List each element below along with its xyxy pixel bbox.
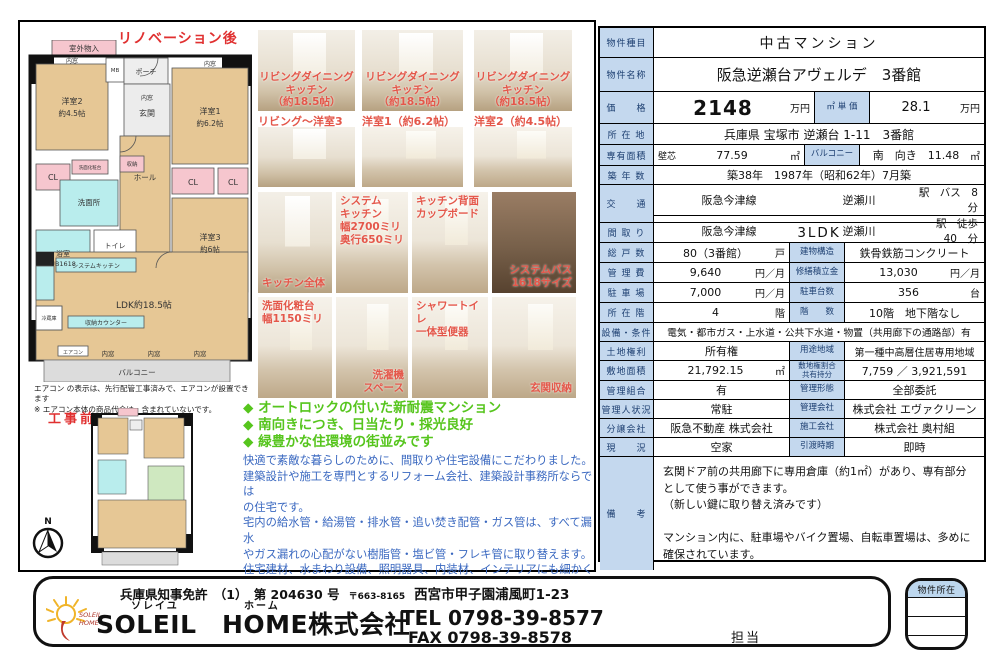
mgmt-fee-value: 9,640	[658, 266, 753, 279]
photo-caption: システム キッチン 幅2700ミリ 奥行650ミリ	[340, 195, 404, 248]
photo-ldk-1: リビングダイニングキッチン （約18.5帖）	[258, 30, 355, 111]
plan-uchimado-label: 内窓	[148, 349, 162, 358]
repair-fund-value: 13,030	[849, 266, 948, 279]
table-row: 管理組合 有 管理形態 全部委託	[600, 381, 984, 400]
photo-caption: 玄関収納	[530, 382, 572, 395]
flyer-page: リノベーション後 室外物入	[0, 0, 1000, 651]
occupancy-value: 空家	[658, 439, 785, 455]
row-sublabel: 敷地権割合 共有持分	[789, 361, 845, 380]
land-rights-value: 所有権	[658, 343, 785, 359]
table-row: 間 取 り 3LDK	[600, 223, 984, 243]
phone-number: TEL 0798-39-8577	[401, 606, 604, 630]
floor-value: 4	[658, 306, 773, 319]
photo-caption: 洗濯機 スペース	[363, 369, 404, 395]
plan-cl-label: CL	[48, 173, 59, 182]
row-sublabel: 管理会社	[789, 400, 845, 418]
row-label: 総 戸 数	[600, 243, 654, 262]
utilities-value: 電気・都市ガス・上水道・公共下水道・物置（共用廊下の通路部）有	[654, 323, 984, 341]
floorplan-after: 室外物入 内窓 内窓 MB	[24, 40, 252, 382]
plan-fridge-label: 冷蔵庫	[41, 315, 56, 322]
feature-item: ◆ オートロックの付いた新耐震マンション	[243, 400, 595, 417]
zoning-value: 第一種中高層住居専用地域	[849, 344, 980, 359]
mgmt-company-value: 株式会社 エヴァクリーン	[849, 401, 980, 417]
plan-room3-size: 約6帖	[200, 244, 220, 254]
parking-count-value: 356	[849, 286, 968, 299]
plan-uchimado-label: 内窓	[141, 94, 153, 102]
row-label: 分譲会社	[600, 419, 654, 437]
photo-caption: キッチン全体	[262, 275, 325, 290]
plan-uchimado-label: 内窓	[204, 60, 216, 68]
photo-system-kitchen: システム キッチン 幅2700ミリ 奥行650ミリ	[336, 192, 408, 293]
footer-bar: 兵庫県知事免許 （1） 第 204630 号 〒663-8165 西宮市甲子園浦…	[33, 576, 891, 647]
feature-item: ◆ 南向きにつき、日当たり・採光良好	[243, 417, 595, 434]
row-label: 管理組合	[600, 381, 654, 399]
table-row: 所 在 階 4階 階 数 10階 地下階なし	[600, 303, 984, 323]
company-name: SOLEIL HOME株式会社	[96, 605, 410, 641]
row-label: 駐 車 場	[600, 283, 654, 302]
row-sublabel: ㎡ 単 価	[814, 92, 870, 123]
row-label: 専有面積	[600, 145, 654, 165]
row-label: 所 在 階	[600, 303, 654, 322]
plan-uchimado-label: 内窓	[66, 57, 78, 65]
row-label: 築 年 数	[600, 166, 654, 184]
fax-number: FAX 0798-39-8578	[408, 628, 572, 647]
plan-vanity-label: 洗面化粧台	[79, 164, 102, 171]
property-location-box: 物件所在	[905, 578, 968, 650]
table-row: 築 年 数 築38年 1987年（昭和62年）7月築	[600, 166, 984, 185]
plan-cl-label: CL	[228, 178, 239, 187]
row-sublabel: 建物構造	[789, 243, 845, 262]
staff-label: 担当	[731, 627, 761, 646]
feature-list: ◆ オートロックの付いた新耐震マンション ◆ 南向きにつき、日当たり・採光良好 …	[243, 400, 595, 451]
photo-shower-toilet: シャワートイレ 一体型便器	[412, 297, 488, 398]
plan-bath-label: 浴室	[56, 249, 70, 258]
postal-code: 〒663-8165	[349, 589, 406, 602]
plan-kitchen-label: システムキッチン	[72, 263, 120, 270]
access-line: 阪急今津線	[654, 192, 804, 208]
access-station: 逆瀬川	[804, 192, 914, 208]
photo-laundry-space: 洗濯機 スペース	[336, 297, 408, 398]
unit-price-value: 28.1	[874, 100, 958, 115]
property-location-label: 物件所在	[908, 581, 965, 598]
structure-value: 鉄骨鉄筋コンクリート	[849, 245, 980, 261]
table-row: 物件種目 中古マンション	[600, 28, 984, 58]
photo-room1	[362, 127, 463, 187]
plan-room2-label: 洋室2	[61, 96, 82, 106]
photo-room2	[474, 127, 572, 187]
table-row: 物件名称 阪急逆瀬台アヴェルデ 3番館	[600, 58, 984, 92]
price-value: 2148	[658, 96, 788, 120]
row-label: 管理人状況	[600, 400, 654, 418]
row-label: 現 況	[600, 438, 654, 456]
property-name-value: 阪急逆瀬台アヴェルデ 3番館	[654, 58, 984, 91]
plan-aircon-label: エアコン	[63, 350, 83, 356]
table-row: 土地権利 所有権 用途地域 第一種中高層住居専用地域	[600, 342, 984, 361]
handover-value: 即時	[849, 439, 980, 455]
description-text: 快適で素敵な暮らしのために、間取りや住宅設備にこだわりました。 建築設計や施工を…	[243, 453, 597, 593]
photo-entrance-storage: 玄関収納	[492, 297, 576, 398]
photo-caption: 洗面化粧台 幅1150ミリ	[262, 300, 323, 326]
plan-room1-size: 約6.2帖	[197, 118, 224, 128]
photo-caption: リビングダイニングキッチン （約18.5帖）	[258, 71, 355, 109]
plan-uchimado-label: 内窓	[194, 349, 208, 358]
plan-ldk-label: LDK約18.5帖	[116, 299, 172, 311]
table-row-remarks: 備 考 玄関ドア前の共用廊下に専用倉庫（約1㎡）があり、専有部分 として使う事が…	[600, 457, 984, 570]
row-sublabel: 駐車台数	[789, 283, 845, 302]
photo-kitchen-whole: キッチン全体	[258, 192, 332, 293]
photo-caption: リビングダイニングキッチン （約18.5帖）	[362, 71, 463, 109]
row-label: 物件種目	[600, 28, 654, 57]
unit-price-unit: 万円	[958, 100, 980, 115]
location-value: 兵庫県 宝塚市 逆瀬台 1-11 3番館	[654, 124, 984, 144]
row-label: 設備・条件	[600, 323, 654, 341]
table-row: 管 理 費 9,640円／月 修繕積立金 13,030円／月	[600, 263, 984, 283]
access-detail: 駅 バス 8 分	[914, 185, 984, 215]
table-row: 現 況 空家 引渡時期 即時	[600, 438, 984, 457]
plan-counter-label: 収納カウンター	[85, 319, 127, 327]
row-label: 交 通	[600, 185, 654, 222]
floorplan-before	[88, 408, 198, 568]
area-value: 77.59	[676, 149, 788, 162]
parking-value: 7,000	[658, 286, 753, 299]
soleil-home-logo-icon: SOLEIL HOME	[46, 595, 100, 647]
row-label: 間 取 り	[600, 223, 654, 242]
property-type-value: 中古マンション	[654, 28, 984, 57]
row-sublabel: 用途地域	[789, 342, 845, 360]
company-address: 西宮市甲子園浦風町1-23	[414, 583, 569, 603]
location-box-row	[908, 617, 965, 636]
photo-living-room3	[258, 127, 355, 187]
row-label: 物件名称	[600, 58, 654, 91]
table-row: 駐 車 場 7,000円／月 駐車台数 356台	[600, 283, 984, 303]
balcony-unit: ㎡	[968, 148, 980, 163]
photo-caption: システムバス 1618サイズ	[509, 264, 572, 290]
photo-ldk-2: リビングダイニングキッチン （約18.5帖）	[362, 30, 463, 111]
developer-value: 阪急不動産 株式会社	[658, 420, 785, 436]
row-sublabel: 引渡時期	[789, 438, 845, 456]
table-row: 専有面積 壁芯77.59㎡ バルコニー 南 向き 11.48㎡	[600, 145, 984, 166]
units-value: 80（3番館）	[658, 245, 773, 261]
row-sublabel: 修繕積立金	[789, 263, 845, 282]
table-row-access: 交 通 阪急今津線逆瀬川駅 バス 8 分 阪急今津線逆瀬川駅 徒歩 40 分	[600, 185, 984, 223]
plan-storage-label: 収納	[126, 160, 138, 168]
table-row: 総 戸 数 80（3番館）戸 建物構造 鉄骨鉄筋コンクリート	[600, 243, 984, 263]
table-row: 価 格 2148万円 ㎡ 単 価 28.1万円	[600, 92, 984, 124]
plan-hall-label: ホール	[134, 173, 157, 182]
photo-caption: キッチン背面 カップボード	[416, 195, 479, 221]
row-sublabel: 管理形態	[789, 381, 845, 399]
photo-caption: シャワートイレ 一体型便器	[416, 300, 488, 339]
row-sublabel: 階 数	[789, 303, 845, 322]
row-sublabel: 施工会社	[789, 419, 845, 437]
price-unit: 万円	[788, 100, 810, 115]
plan-balcony-label: バルコニー	[118, 368, 155, 377]
layout-value: 3LDK	[654, 223, 984, 242]
property-table: 物件種目 中古マンション 物件名称 阪急逆瀬台アヴェルデ 3番館 価 格 214…	[598, 26, 986, 562]
location-box-row	[908, 598, 965, 617]
photo-vanity: 洗面化粧台 幅1150ミリ	[258, 297, 332, 398]
plan-mb-label: MB	[111, 68, 120, 74]
row-label: 価 格	[600, 92, 654, 123]
plan-toilet-label: トイレ	[105, 242, 126, 250]
balcony-value: 南 向き 11.48	[864, 147, 968, 163]
site-area-value: 21,792.15	[658, 364, 773, 377]
row-label: 備 考	[600, 457, 654, 570]
plan-room3-label: 洋室3	[199, 232, 220, 242]
land-share-value: 7,759 ／ 3,921,591	[849, 363, 980, 379]
remarks-text: 玄関ドア前の共用廊下に専用倉庫（約1㎡）があり、専有部分 として使う事ができます…	[654, 457, 984, 570]
plan-porch-label: ポーチ	[136, 68, 157, 76]
area-unit: ㎡	[788, 148, 800, 163]
table-row: 分譲会社 阪急不動産 株式会社 施工会社 株式会社 奥村組	[600, 419, 984, 438]
plan-uchimado-label: 内窓	[102, 349, 116, 358]
photo-system-bath: システムバス 1618サイズ	[492, 192, 576, 293]
row-label: 土地権利	[600, 342, 654, 360]
photo-cupboard: キッチン背面 カップボード	[412, 192, 488, 293]
mgmt-form-value: 全部委託	[849, 382, 980, 398]
compass-icon: N	[30, 515, 66, 561]
photo-ldk-3: リビングダイニングキッチン （約18.5帖）	[474, 30, 572, 111]
area-prefix: 壁芯	[658, 149, 676, 162]
row-label: 管 理 費	[600, 263, 654, 282]
plan-washroom-label: 洗面所	[78, 197, 101, 207]
association-value: 有	[658, 382, 785, 398]
table-row: 管理人状況 常駐 管理会社 株式会社 エヴァクリーン	[600, 400, 984, 419]
feature-item: ◆ 緑豊かな住環境の街並みです	[243, 434, 595, 451]
row-label: 敷地面積	[600, 361, 654, 380]
table-row: 設備・条件 電気・都市ガス・上水道・公共下水道・物置（共用廊下の通路部）有	[600, 323, 984, 342]
age-value: 築38年 1987年（昭和62年）7月築	[654, 166, 984, 184]
manager-status-value: 常駐	[658, 401, 785, 417]
plan-cl-label: CL	[188, 178, 199, 187]
builder-value: 株式会社 奥村組	[849, 420, 980, 436]
table-row: 敷地面積 21,792.15㎡ 敷地権割合 共有持分 7,759 ／ 3,921…	[600, 361, 984, 381]
total-floors-value: 10階 地下階なし	[849, 305, 980, 321]
table-row: 所 在 地 兵庫県 宝塚市 逆瀬台 1-11 3番館	[600, 124, 984, 145]
plan-outdoor-storage: 室外物入	[69, 43, 99, 53]
photo-caption: リビングダイニングキッチン （約18.5帖）	[474, 71, 572, 109]
plan-room1-label: 洋室1	[199, 106, 220, 116]
license-row: 兵庫県知事免許 （1） 第 204630 号 〒663-8165 西宮市甲子園浦…	[120, 583, 569, 603]
plan-room2-size: 約4.5帖	[59, 108, 86, 118]
row-sublabel: バルコニー	[804, 145, 860, 165]
staff-underline	[696, 645, 814, 646]
compass-n-label: N	[44, 517, 52, 527]
plan-genkan-label: 玄関	[139, 108, 155, 118]
row-label: 所 在 地	[600, 124, 654, 144]
